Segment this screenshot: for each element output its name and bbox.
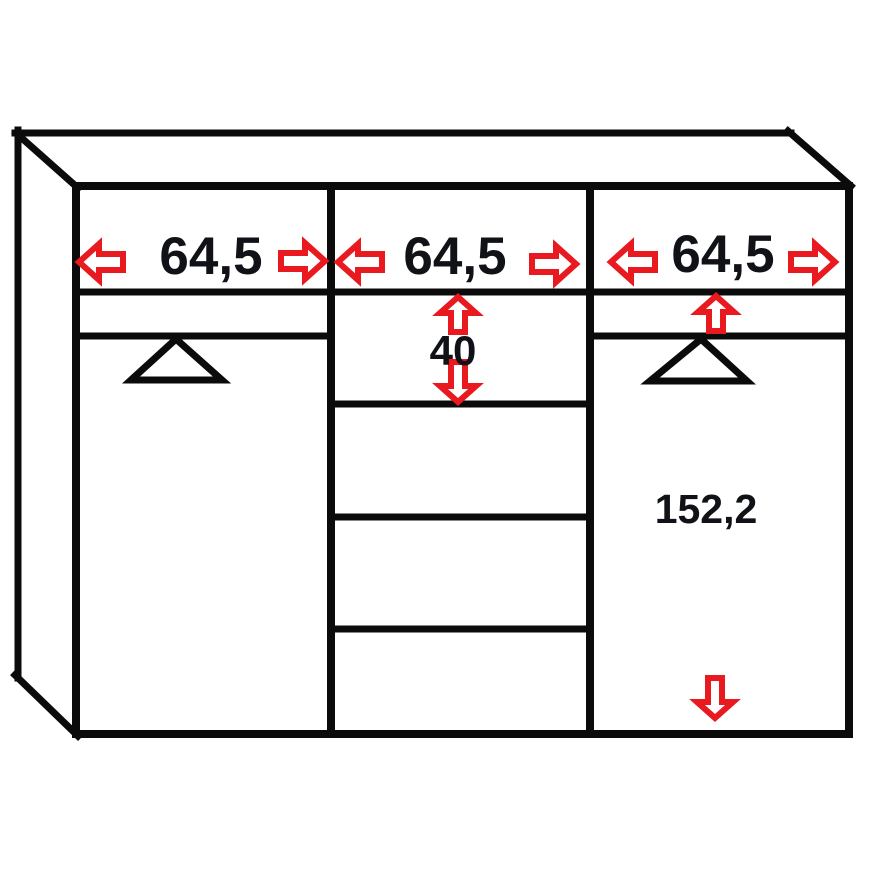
- bottom-left-depth-edge: [15, 675, 78, 736]
- top-right-depth-edge: [788, 131, 851, 186]
- right-door-triangle-icon: [650, 339, 747, 381]
- right-section-width-label: 64,5: [633, 228, 813, 281]
- top-left-depth-edge: [16, 133, 78, 188]
- left-section-width-label: 64,5: [121, 230, 301, 283]
- cabinet-height-label: 152,2: [626, 489, 786, 530]
- left-door-triangle-icon: [131, 339, 222, 380]
- drawer-height-label: 40: [413, 330, 493, 372]
- cabinet-height-arrow-down-icon: [697, 678, 733, 718]
- wardrobe-dimension-diagram: 64,5 64,5 64,5 40 152,2: [0, 0, 870, 870]
- middle-section-width-label: 64,5: [365, 230, 545, 283]
- cabinet-height-arrow-up-icon: [698, 296, 734, 331]
- cabinet-line-art: [0, 0, 870, 870]
- left-section-arrow-left-icon: [79, 244, 123, 280]
